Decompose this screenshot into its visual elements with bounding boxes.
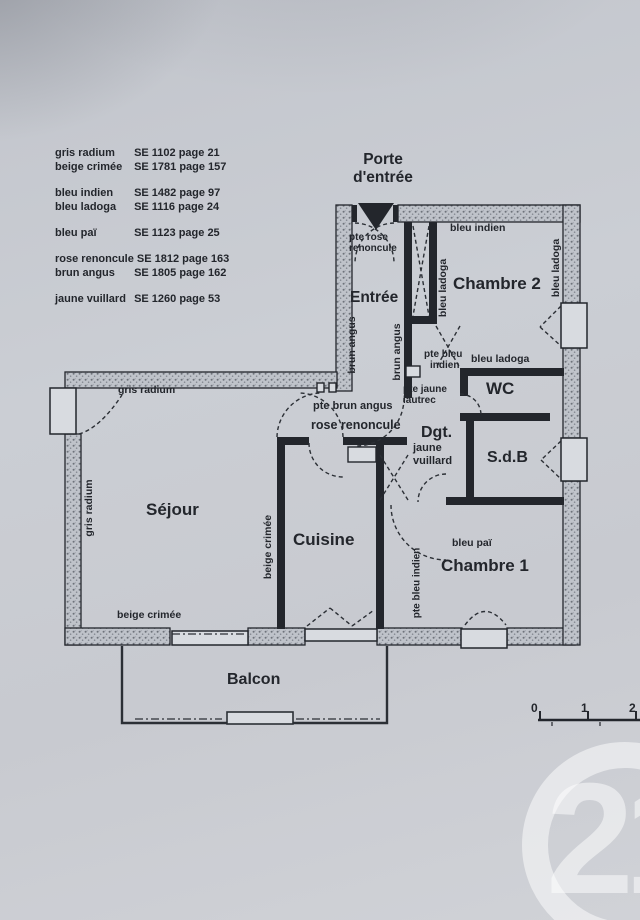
- room-label-entree: Entrée: [350, 289, 398, 307]
- legend-group: bleu indien SE 1482 page 97 bleu ladoga …: [55, 186, 229, 214]
- door-label-pte-rose-renoncule-line1: pte rose: [349, 232, 397, 243]
- catalog-ref: SE 1482 page 97: [134, 187, 220, 199]
- room-label-wc: WC: [486, 379, 514, 398]
- door-label-pte-bleu-indien: pte bleu indien: [424, 349, 462, 371]
- legend-row: bleu indien SE 1482 page 97: [55, 186, 229, 200]
- room-label-cuisine: Cuisine: [293, 530, 354, 549]
- legend-row: brun angus SE 1805 page 162: [55, 266, 229, 280]
- room-label-sejour: Séjour: [146, 500, 199, 519]
- paint-label-brun-angus-left: brun angus: [346, 316, 358, 373]
- scale-tick-0: 0: [531, 701, 538, 715]
- scale-tick-1: 1: [581, 701, 588, 715]
- door-label-pte-rose-renoncule-line2: renoncule: [349, 243, 397, 254]
- catalog-ref: SE 1102 page 21: [134, 147, 220, 159]
- paint-name: brun angus: [55, 266, 131, 280]
- door-label-pte-jaune-lautrec-line1: pte jaune: [403, 384, 447, 395]
- paint-name: bleu paï: [55, 226, 131, 240]
- entrance-door-label-line1: Porte: [323, 151, 443, 169]
- scale-bar: [538, 711, 640, 726]
- legend-group: gris radium SE 1102 page 21 beige crimée…: [55, 146, 229, 174]
- door-label-pte-bleu-indien-side: pte bleu indien: [412, 548, 423, 619]
- legend-row: gris radium SE 1102 page 21: [55, 146, 229, 160]
- door-label-pte-bleu-indien-line2: indien: [424, 360, 462, 371]
- paint-label-beige-crimee-bottom: beige crimée: [117, 609, 181, 621]
- paint-label-gris-radium-side: gris radium: [83, 479, 95, 536]
- room-label-balcon: Balcon: [227, 671, 280, 689]
- entrance-door-label: Porte d'entrée: [323, 151, 443, 187]
- paint-legend: gris radium SE 1102 page 21 beige crimée…: [55, 146, 229, 318]
- door-label-pte-rose-renoncule: pte rose renoncule: [349, 232, 397, 254]
- paint-label-brun-angus-right: brun angus: [391, 323, 403, 380]
- paint-label-jaune-vuillard-line2: vuillard: [413, 455, 452, 468]
- legend-row: bleu paï SE 1123 page 25: [55, 226, 229, 240]
- legend-group: rose renoncule SE 1812 page 163 brun ang…: [55, 252, 229, 280]
- entrance-door-label-line2: d'entrée: [323, 169, 443, 187]
- door-label-pte-brun-angus: pte brun angus: [313, 400, 392, 413]
- paint-name: rose renoncule: [55, 252, 134, 266]
- paint-label-bleu-ladoga-left: bleu ladoga: [437, 259, 449, 317]
- scanned-floorplan-page: gris radium SE 1102 page 21 beige crimée…: [0, 0, 640, 920]
- paint-label-jaune-vuillard: jaune vuillard: [413, 442, 452, 468]
- legend-row: jaune vuillard SE 1260 page 53: [55, 292, 229, 306]
- legend-group: jaune vuillard SE 1260 page 53: [55, 292, 229, 306]
- paint-label-bleu-ladoga-wc: bleu ladoga: [471, 353, 529, 365]
- room-label-sdb: S.d.B: [487, 449, 528, 467]
- paint-label-bleu-pai: bleu paï: [452, 537, 492, 549]
- catalog-ref: SE 1123 page 25: [134, 227, 220, 239]
- catalog-ref: SE 1805 page 162: [134, 267, 226, 279]
- legend-row: beige crimée SE 1781 page 157: [55, 160, 229, 174]
- paint-label-jaune-vuillard-line1: jaune: [413, 442, 452, 455]
- door-label-pte-jaune-lautrec-line2: lautrec: [403, 395, 447, 406]
- room-label-chambre2: Chambre 2: [453, 274, 541, 293]
- century21-watermark-number: 21: [546, 760, 640, 918]
- door-label-rose-renoncule: rose renoncule: [311, 418, 401, 432]
- paint-label-beige-crimee-side: beige crimée: [262, 515, 274, 579]
- catalog-ref: SE 1812 page 163: [137, 253, 229, 265]
- paint-name: gris radium: [55, 146, 131, 160]
- scale-tick-2: 2: [629, 701, 636, 715]
- paint-label-bleu-ladoga-right: bleu ladoga: [550, 239, 562, 297]
- room-label-chambre1: Chambre 1: [441, 556, 529, 575]
- entrance-arrow-icon: [358, 203, 394, 230]
- legend-group: bleu paï SE 1123 page 25: [55, 226, 229, 240]
- legend-row: bleu ladoga SE 1116 page 24: [55, 200, 229, 214]
- door-label-pte-jaune-lautrec: pte jaune lautrec: [403, 384, 447, 406]
- door-label-pte-bleu-indien-line1: pte bleu: [424, 349, 462, 360]
- room-label-dgt: Dgt.: [421, 424, 452, 442]
- paint-name: beige crimée: [55, 160, 131, 174]
- paint-label-gris-radium-top: gris radium: [118, 384, 175, 396]
- catalog-ref: SE 1260 page 53: [134, 293, 220, 305]
- catalog-ref: SE 1116 page 24: [134, 201, 219, 213]
- legend-row: rose renoncule SE 1812 page 163: [55, 252, 229, 266]
- paint-name: bleu ladoga: [55, 200, 131, 214]
- paint-label-bleu-indien: bleu indien: [450, 222, 505, 234]
- catalog-ref: SE 1781 page 157: [134, 161, 226, 173]
- paint-name: bleu indien: [55, 186, 131, 200]
- paint-name: jaune vuillard: [55, 292, 131, 306]
- floorplan-drawing: [0, 0, 640, 920]
